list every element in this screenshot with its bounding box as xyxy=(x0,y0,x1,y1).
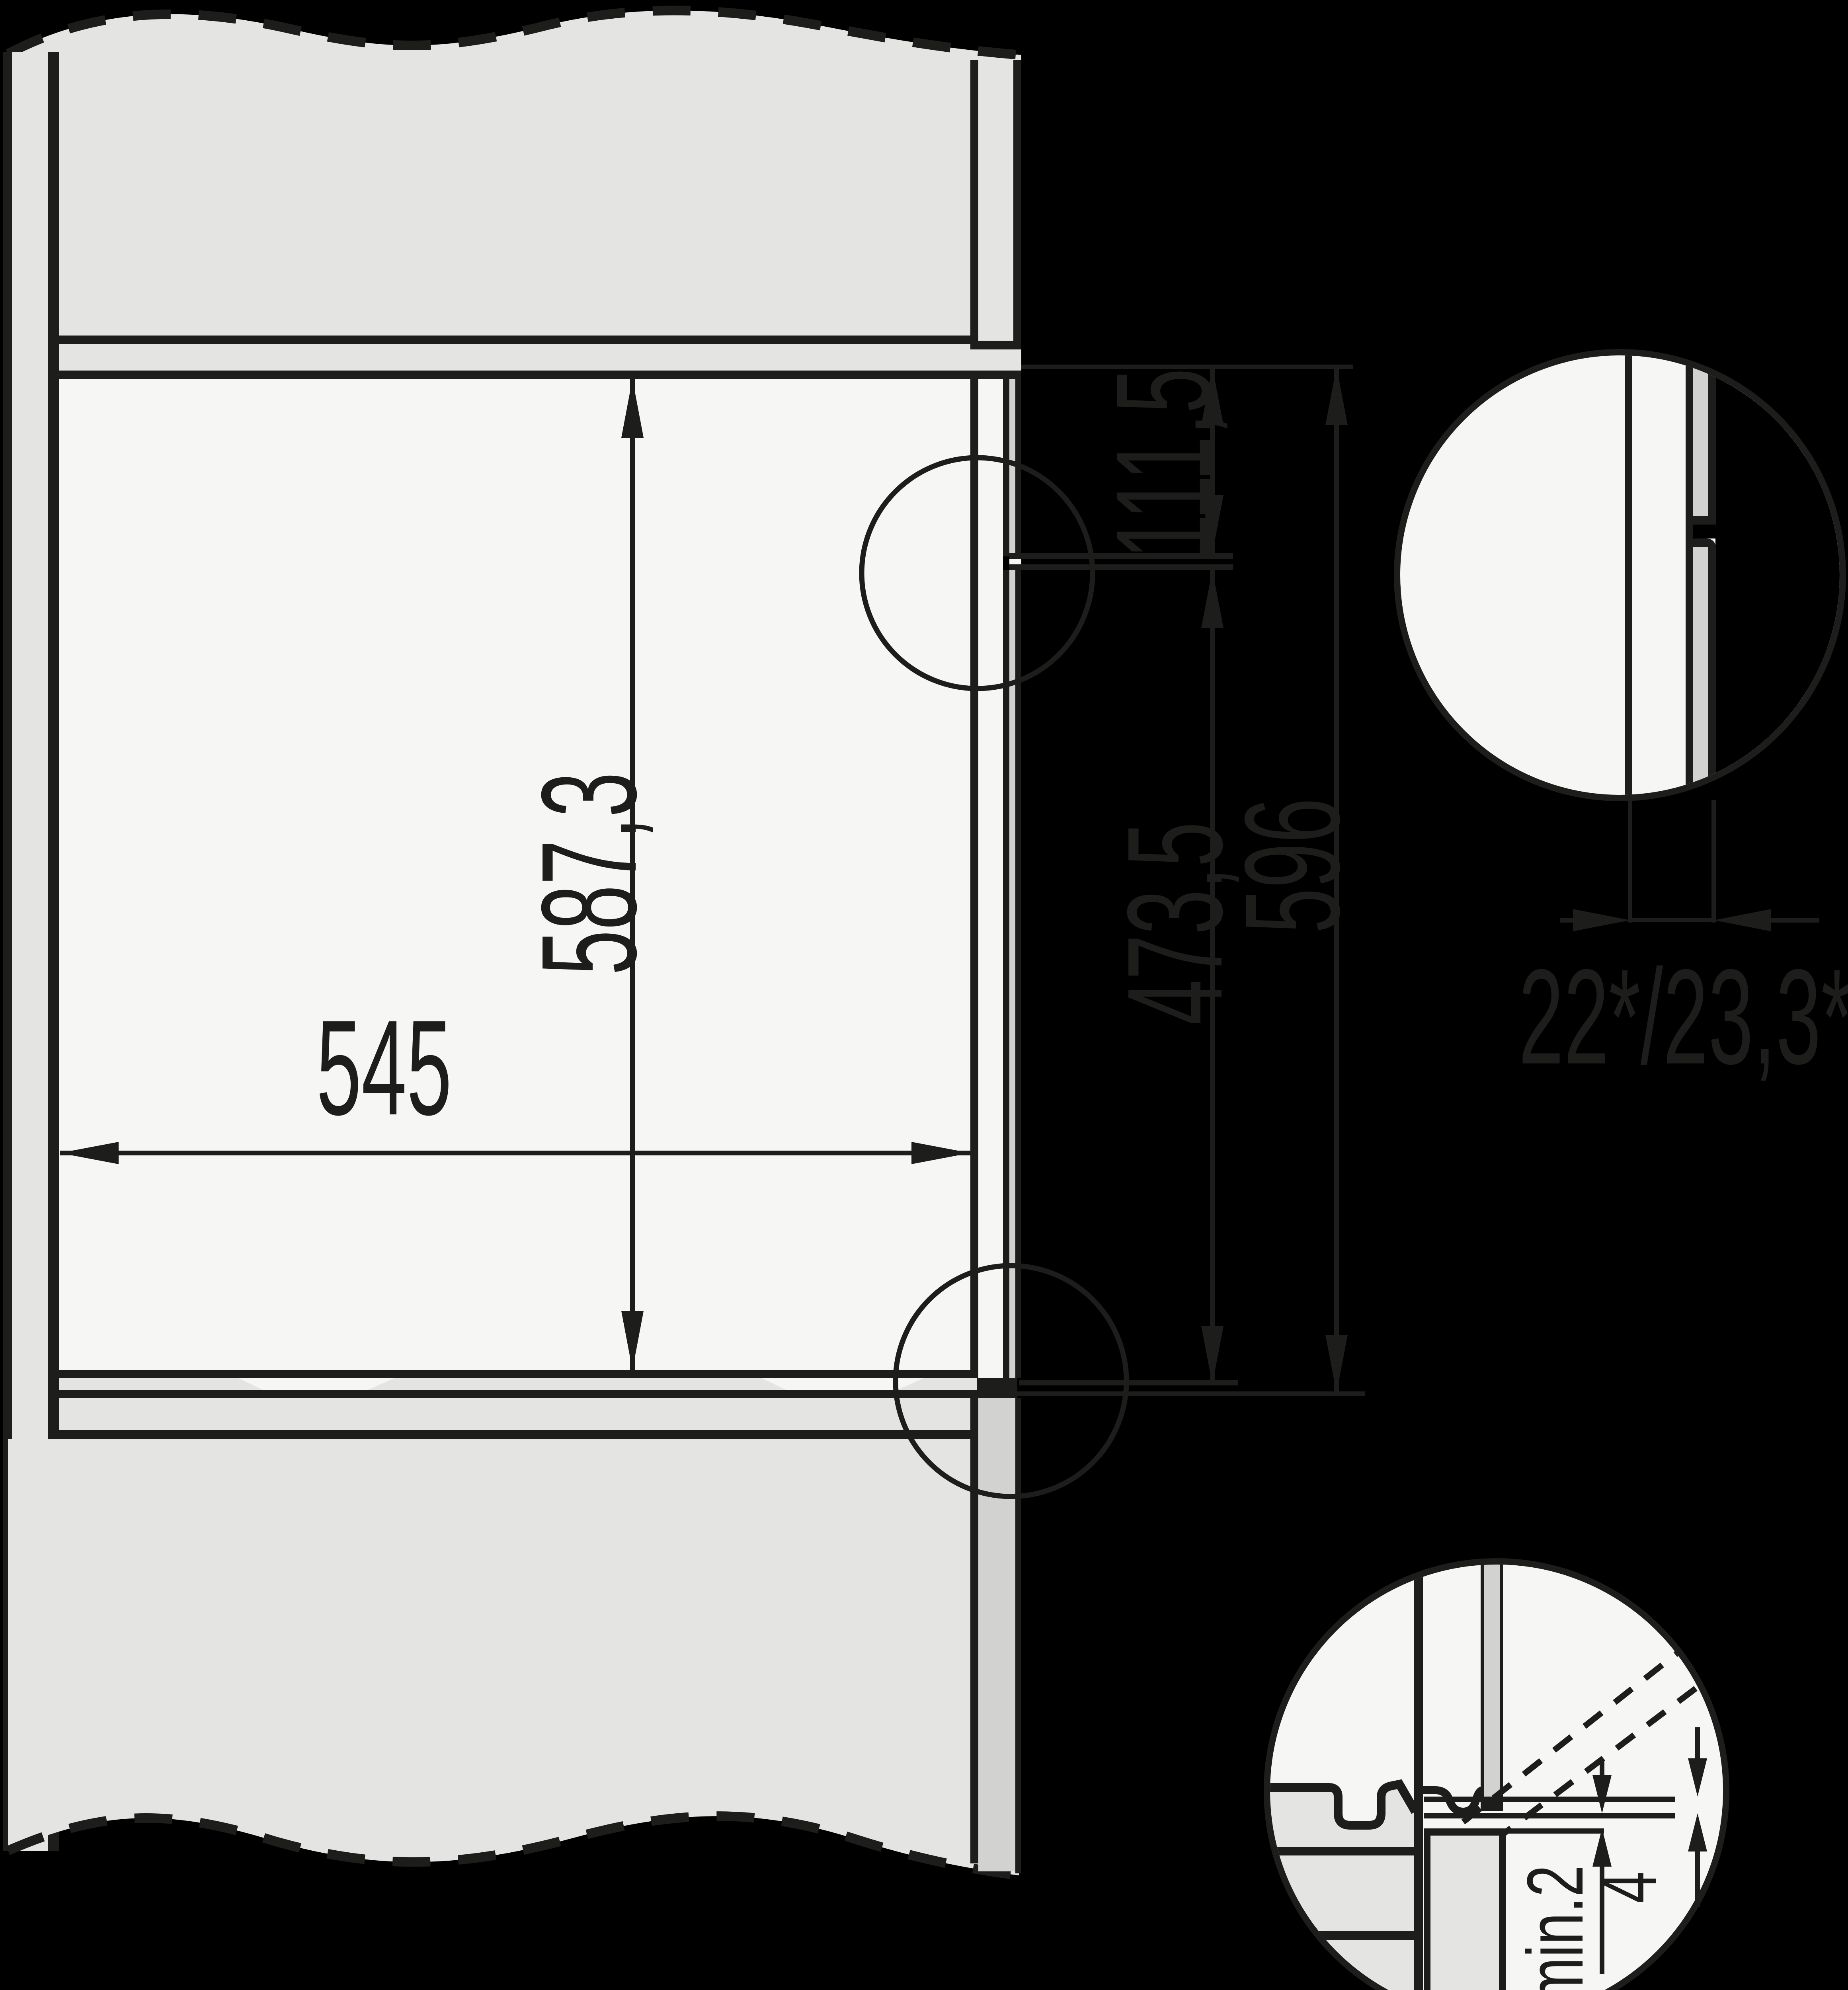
tick-niche-floor xyxy=(1424,1797,1675,1802)
lower-front-edge-line-left xyxy=(970,1398,978,1863)
vent-slot-right xyxy=(762,1378,923,1390)
installation-diagram-page: 587,3 545 111,5 473,5 xyxy=(0,0,1848,1990)
door-seam-gap xyxy=(1009,559,1021,564)
upper-front-edge-line-right xyxy=(1013,60,1021,349)
tick-door-bottom xyxy=(1424,1813,1675,1818)
niche-front-wall-line xyxy=(970,379,978,1378)
niche-floor-line xyxy=(48,1370,978,1378)
niche-height-label: 587,3 xyxy=(513,772,665,975)
door-panel-lower xyxy=(1009,570,1015,1378)
bottom-tick xyxy=(1019,1380,1238,1385)
shelf-line-extension xyxy=(1017,1391,1365,1396)
vent-groove xyxy=(1337,1779,1382,1825)
arrow-tail-right xyxy=(1771,918,1819,923)
cabinet-front-plane-line xyxy=(1625,346,1632,808)
door-face-line-lower xyxy=(1015,570,1021,1378)
appliance-body-strip xyxy=(978,379,1003,1378)
dim-line-top xyxy=(1600,1759,1604,1777)
lower-door-panel xyxy=(1693,547,1708,808)
dim-line xyxy=(60,1151,970,1155)
niche-top-line xyxy=(48,371,1021,379)
dim-line xyxy=(1630,918,1714,922)
extension-line-left xyxy=(1628,800,1632,923)
lower-front-panel xyxy=(978,1398,1015,1871)
door-outer-panel xyxy=(1484,1560,1500,1802)
door-bottom-gap xyxy=(977,1378,1017,1398)
dim-line-bottom xyxy=(1695,1851,1700,1907)
lower-cabinet-body xyxy=(8,1439,1019,1875)
vent-slot-left xyxy=(239,1378,394,1390)
upper-board-top-line xyxy=(48,336,978,344)
lower-front-edge-line-right xyxy=(1015,1398,1021,1873)
niche-width-label: 545 xyxy=(316,992,452,1143)
seam-reference-line-lower xyxy=(1009,564,1233,570)
seam-gap-black xyxy=(1693,525,1715,538)
dim-line-top xyxy=(1695,1727,1700,1761)
lower-cabinet-top-line xyxy=(48,1430,978,1439)
top-offset-label: 111,5 xyxy=(1088,368,1239,559)
bottom-overlap-label: 4 xyxy=(1584,1871,1673,1903)
extension-line-right xyxy=(1711,800,1716,923)
door-inner-line xyxy=(1686,346,1693,808)
lower-panel-section xyxy=(1430,1836,1499,1990)
shelf-bottom-line xyxy=(48,1390,1017,1398)
door-inner-line-lower xyxy=(1003,570,1009,1378)
dimension-top-offset: 111,5 xyxy=(1088,367,1239,559)
upper-cabinet-body xyxy=(8,10,1021,379)
door-inner-line-upper xyxy=(1003,379,1009,556)
shelf-board xyxy=(59,1398,970,1430)
front-plane-line xyxy=(1414,1560,1423,1990)
front-total-label: 596 xyxy=(1217,798,1368,933)
installation-diagram: 587,3 545 111,5 473,5 xyxy=(0,0,1848,1990)
panel-thickness-label: 22*/23,3* xyxy=(1518,941,1848,1093)
upper-front-edge-line-left xyxy=(970,60,978,349)
